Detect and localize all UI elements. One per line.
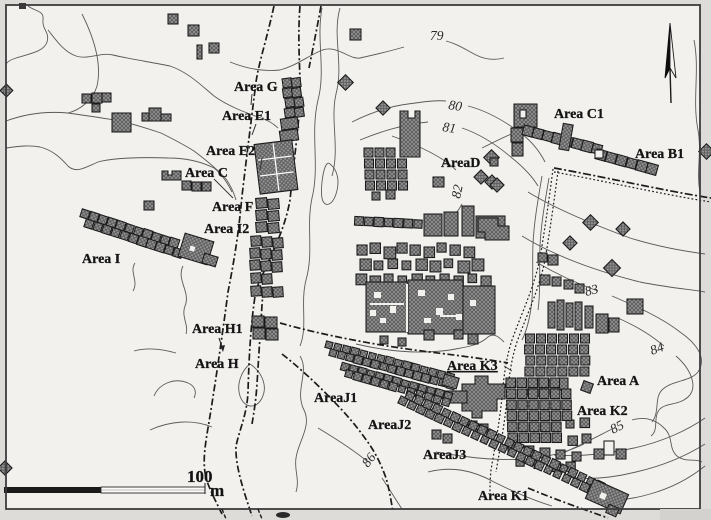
svg-text:Area K2: Area K2 xyxy=(577,404,628,419)
svg-text:100: 100 xyxy=(187,467,213,486)
svg-text:Area I2: Area I2 xyxy=(204,222,249,237)
svg-text:Area H1: Area H1 xyxy=(192,322,243,337)
svg-text:m: m xyxy=(210,481,224,500)
svg-text:Area E1: Area E1 xyxy=(222,109,271,124)
svg-text:Area F: Area F xyxy=(212,200,253,215)
svg-text:79: 79 xyxy=(430,28,444,43)
svg-text:Area C1: Area C1 xyxy=(554,107,604,122)
svg-text:Area A: Area A xyxy=(597,374,640,389)
svg-text:AreaJ2: AreaJ2 xyxy=(368,418,411,433)
svg-text:AreaD: AreaD xyxy=(441,156,480,171)
svg-text:Area E2: Area E2 xyxy=(206,144,255,159)
svg-text:81: 81 xyxy=(442,119,457,136)
svg-text:80: 80 xyxy=(448,97,464,114)
svg-text:Area K3: Area K3 xyxy=(447,359,498,374)
svg-text:Area C: Area C xyxy=(185,166,228,181)
svg-text:Area B1: Area B1 xyxy=(635,147,684,162)
svg-text:Area H: Area H xyxy=(195,357,239,372)
svg-text:AreaJ1: AreaJ1 xyxy=(314,391,357,406)
svg-text:Area K1: Area K1 xyxy=(478,489,529,504)
svg-text:AreaJ3: AreaJ3 xyxy=(423,448,466,463)
svg-text:Area G: Area G xyxy=(234,80,278,95)
svg-text:Area I: Area I xyxy=(82,252,120,267)
